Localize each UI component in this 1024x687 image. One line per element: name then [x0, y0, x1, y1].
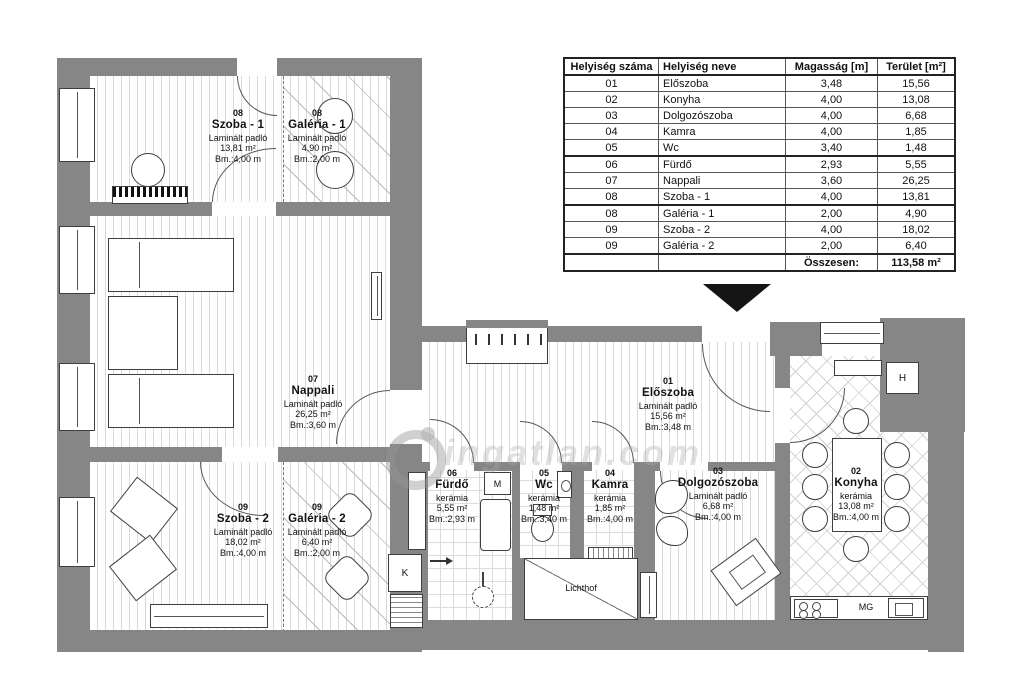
cell-area: 18,02	[877, 222, 955, 238]
room-height: Bm.:2,00 m	[265, 548, 369, 559]
cell-height: 3,40	[785, 140, 877, 157]
chair	[884, 442, 910, 468]
wall	[422, 326, 470, 342]
cell-height: 4,00	[785, 222, 877, 238]
wall	[778, 620, 964, 650]
room-name: Wc	[516, 479, 572, 493]
gallery-stairs	[390, 594, 423, 628]
room-label-dolgozoszoba: 03 Dolgozószoba Laminált padló 6,68 m² B…	[660, 466, 776, 523]
wall	[775, 356, 790, 388]
kitchen-counter	[834, 360, 882, 376]
cell-number: 03	[564, 108, 659, 124]
washing-machine-label: M	[494, 479, 502, 489]
cell-name: Galéria - 2	[659, 238, 786, 255]
wall	[545, 326, 702, 342]
room-floor: kerámia	[806, 491, 906, 502]
cell-area: 13,08	[877, 92, 955, 108]
table-row: 05Wc3,401,48	[564, 140, 955, 157]
wall	[928, 430, 964, 652]
room-area: 1,85 m²	[582, 503, 638, 514]
cabinet	[640, 572, 657, 618]
room-floor: Laminált padló	[265, 133, 369, 144]
table-row: 07Nappali3,6026,25	[564, 173, 955, 189]
cell-area: 15,56	[877, 75, 955, 92]
room-label-wc: 05 Wc kerámia 1,48 m² Bm.:3,40 m	[516, 468, 572, 525]
cell-area: 1,85	[877, 124, 955, 140]
column-header: Terület [m²]	[877, 58, 955, 75]
wall	[422, 620, 778, 650]
wall	[57, 447, 222, 462]
cell-number: 06	[564, 156, 659, 173]
cell-height: 3,60	[785, 173, 877, 189]
cell-height: 4,00	[785, 124, 877, 140]
column-header: Helyiség száma	[564, 58, 659, 75]
cell-name: Szoba - 1	[659, 189, 786, 206]
cell-number: 05	[564, 140, 659, 157]
room-number: 09	[265, 502, 369, 513]
table-row: 06Fürdő2,935,55	[564, 156, 955, 173]
table-row: 09Szoba - 24,0018,02	[564, 222, 955, 238]
window	[59, 226, 95, 294]
wall	[90, 202, 212, 216]
shower-drain-icon	[472, 586, 494, 608]
dishwasher-label: MG	[846, 602, 886, 612]
room-height: Bm.:4,00 m	[660, 512, 776, 523]
bed	[108, 238, 234, 292]
room-area: 15,56 m²	[600, 411, 736, 422]
cell-name: Szoba - 2	[659, 222, 786, 238]
room-label-eloszoba: 01 Előszoba Laminált padló 15,56 m² Bm.:…	[600, 376, 736, 433]
room-height: Bm.:2,93 m	[412, 514, 492, 525]
room-label-nappali: 07 Nappali Laminált padló 26,25 m² Bm.:3…	[226, 374, 400, 431]
lichthof-label: Lichthof	[525, 583, 637, 593]
room-height: Bm.:4,00 m	[806, 512, 906, 523]
table-total-row: Összesen: 113,58 m²	[564, 254, 955, 271]
cell-height: 4,00	[785, 108, 877, 124]
room-name: Galéria - 1	[265, 119, 369, 133]
cell-name: Galéria - 1	[659, 205, 786, 222]
coat-rack-niche	[466, 328, 548, 364]
cell-area: 13,81	[877, 189, 955, 206]
column-header: Magasság [m]	[785, 58, 877, 75]
floor-plan-page: K M Lichthof H MG 08 Szoba - 1	[0, 0, 1024, 687]
room-floor: kerámia	[516, 493, 572, 504]
cell-empty	[564, 254, 659, 271]
room-number: 02	[806, 466, 906, 477]
wall	[390, 58, 422, 390]
cell-number: 01	[564, 75, 659, 92]
cell-area: 6,40	[877, 238, 955, 255]
room-height: Bm.:4,00 m	[582, 514, 638, 525]
cell-area: 4,90	[877, 205, 955, 222]
cell-name: Wc	[659, 140, 786, 157]
room-area: 26,25 m²	[226, 409, 400, 420]
cell-name: Nappali	[659, 173, 786, 189]
wall	[512, 558, 524, 624]
cell-name: Dolgozószoba	[659, 108, 786, 124]
bench	[150, 604, 268, 628]
room-name: Galéria - 2	[265, 513, 369, 527]
cabinet	[108, 296, 178, 370]
stove	[794, 599, 838, 618]
cell-number: 09	[564, 238, 659, 255]
cell-height: 4,00	[785, 92, 877, 108]
cell-number: 04	[564, 124, 659, 140]
cell-number: 07	[564, 173, 659, 189]
wall	[57, 630, 422, 652]
table-row: 03Dolgozószoba4,006,68	[564, 108, 955, 124]
room-floor: kerámia	[412, 493, 492, 504]
fridge-label: H	[899, 373, 906, 384]
window	[59, 363, 95, 431]
cell-height: 2,00	[785, 238, 877, 255]
cell-height: 2,00	[785, 205, 877, 222]
room-area: 6,40 m²	[265, 537, 369, 548]
cell-height: 3,48	[785, 75, 877, 92]
room-label-galeria-1: 08 Galéria - 1 Laminált padló 4,90 m² Bm…	[265, 108, 369, 165]
cell-area: 26,25	[877, 173, 955, 189]
watermark-logo-dot	[421, 427, 435, 441]
cell-name: Kamra	[659, 124, 786, 140]
entrance-arrow	[703, 284, 771, 312]
shaft-k: K	[388, 554, 422, 592]
room-name: Dolgozószoba	[660, 477, 776, 491]
cell-name: Fürdő	[659, 156, 786, 173]
room-floor: kerámia	[582, 493, 638, 504]
window	[59, 497, 95, 567]
room-floor: Laminált padló	[600, 401, 736, 412]
cell-number: 08	[564, 189, 659, 206]
table-row: 01Előszoba3,4815,56	[564, 75, 955, 92]
direction-arrow-tip	[446, 557, 453, 565]
cell-empty	[659, 254, 786, 271]
wall	[276, 202, 390, 216]
cell-area: 5,55	[877, 156, 955, 173]
window	[59, 88, 95, 162]
room-name: Konyha	[806, 477, 906, 491]
cell-area: 1,48	[877, 140, 955, 157]
bed	[108, 374, 234, 428]
cell-number: 08	[564, 205, 659, 222]
direction-arrow	[430, 560, 446, 562]
table-row: 09Galéria - 22,006,40	[564, 238, 955, 255]
chair	[802, 442, 828, 468]
room-table: Helyiség száma Helyiség neve Magasság [m…	[563, 57, 956, 272]
cell-number: 02	[564, 92, 659, 108]
cell-name: Előszoba	[659, 75, 786, 92]
room-name: Előszoba	[600, 387, 736, 401]
room-name: Kamra	[582, 479, 638, 493]
chair	[843, 408, 869, 434]
table-row: 02Konyha4,0013,08	[564, 92, 955, 108]
chair	[843, 536, 869, 562]
room-number: 01	[600, 376, 736, 387]
lichthof: Lichthof	[524, 558, 638, 620]
room-area: 1,48 m²	[516, 503, 572, 514]
watermark-logo-icon	[386, 430, 446, 490]
room-area: 4,90 m²	[265, 143, 369, 154]
cell-number: 09	[564, 222, 659, 238]
window	[820, 322, 884, 344]
table-row: 04Kamra4,001,85	[564, 124, 955, 140]
room-height: Bm.:2,00 m	[265, 154, 369, 165]
table-row: 08Galéria - 12,004,90	[564, 205, 955, 222]
room-height: Bm.:3,40 m	[516, 514, 572, 525]
cell-name: Konyha	[659, 92, 786, 108]
piano	[112, 186, 188, 204]
room-number: 08	[265, 108, 369, 119]
room-label-konyha: 02 Konyha kerámia 13,08 m² Bm.:4,00 m	[806, 466, 906, 523]
fridge: H	[886, 362, 919, 394]
shaft-k-label: K	[402, 568, 409, 579]
room-area: 13,08 m²	[806, 501, 906, 512]
wall	[775, 443, 790, 633]
cell-area: 6,68	[877, 108, 955, 124]
room-floor: Laminált padló	[660, 491, 776, 502]
cell-height: 2,93	[785, 156, 877, 173]
wall	[770, 322, 822, 356]
kitchen-sink	[888, 598, 924, 618]
total-label: Összesen:	[785, 254, 877, 271]
room-floor: Laminált padló	[226, 399, 400, 410]
room-floor: Laminált padló	[265, 527, 369, 538]
room-area: 6,68 m²	[660, 501, 776, 512]
cell-height: 4,00	[785, 189, 877, 206]
column-header: Helyiség neve	[659, 58, 786, 75]
room-name: Nappali	[226, 385, 400, 399]
radiator	[371, 272, 382, 320]
room-area: 5,55 m²	[412, 503, 492, 514]
table-header-row: Helyiség száma Helyiség neve Magasság [m…	[564, 58, 955, 75]
room-label-kamra: 04 Kamra kerámia 1,85 m² Bm.:4,00 m	[582, 468, 638, 525]
table-row: 08Szoba - 14,0013,81	[564, 189, 955, 206]
room-label-galeria-2: 09 Galéria - 2 Laminált padló 6,40 m² Bm…	[265, 502, 369, 559]
room-height: Bm.:3,60 m	[226, 420, 400, 431]
room-number: 07	[226, 374, 400, 385]
watermark-text: ingatlan.com	[444, 432, 702, 474]
total-value: 113,58 m²	[877, 254, 955, 271]
